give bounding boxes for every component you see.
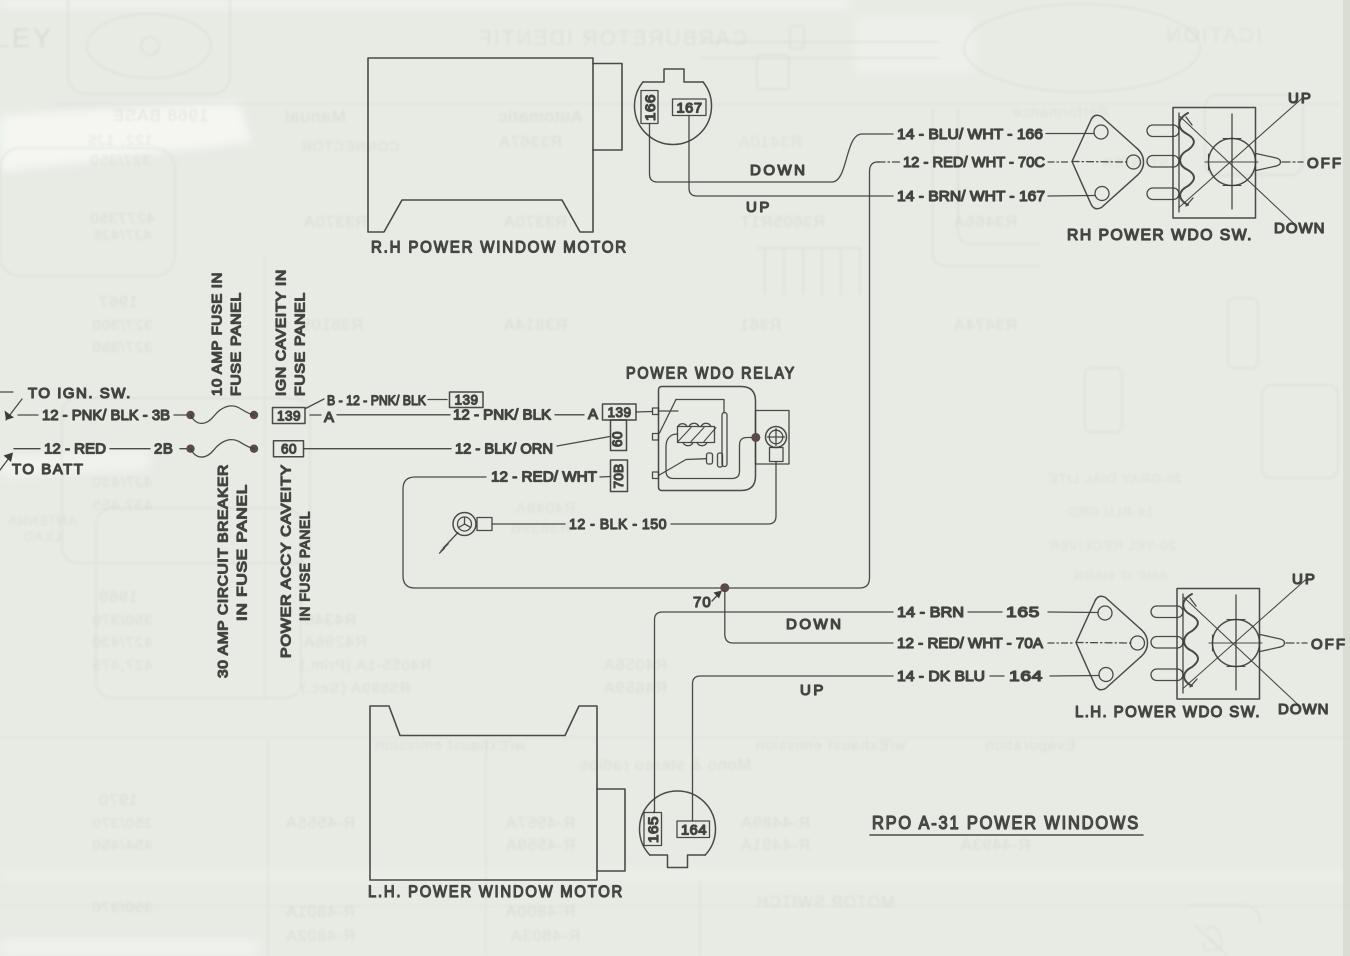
svg-text:CARBURETOR IDENTIF: CARBURETOR IDENTIF — [477, 27, 747, 50]
svg-text:12 - RED/ WHT - 70A: 12 - RED/ WHT - 70A — [897, 635, 1043, 652]
svg-text:R-4557A: R-4557A — [505, 815, 575, 832]
svg-text:20-YEL RECEIVER: 20-YEL RECEIVER — [1048, 538, 1176, 553]
svg-text:POWER ACCY CAVEITY: POWER ACCY CAVEITY — [279, 464, 294, 658]
svg-text:A: A — [324, 409, 334, 426]
svg-text:427,475: 427,475 — [91, 657, 152, 674]
svg-text:A: A — [588, 406, 598, 423]
svg-text:TO BATT: TO BATT — [12, 461, 84, 478]
svg-text:122, 1J5: 122, 1J5 — [87, 132, 153, 149]
svg-text:ANTENNA: ANTENNA — [7, 513, 76, 528]
svg-text:R38105: R38105 — [301, 317, 363, 334]
svg-text:AMP IF HARN: AMP IF HARN — [1073, 568, 1168, 583]
svg-text:R-4491A: R-4491A — [740, 837, 810, 854]
svg-text:139: 139 — [455, 392, 479, 408]
svg-text:1970: 1970 — [98, 792, 138, 809]
svg-text:60: 60 — [609, 431, 625, 447]
svg-text:UP: UP — [1288, 90, 1313, 107]
svg-text:165: 165 — [646, 816, 661, 843]
svg-text:DOWN: DOWN — [1274, 220, 1326, 237]
svg-text:R3370A: R3370A — [503, 214, 567, 231]
svg-text:14 - BLU/ WHT - 166: 14 - BLU/ WHT - 166 — [897, 126, 1043, 143]
svg-text:R4055-1A (Prim.): R4055-1A (Prim.) — [299, 657, 431, 674]
svg-text:R-4803A: R-4803A — [510, 928, 580, 945]
svg-text:12 - BLK - 150: 12 - BLK - 150 — [569, 516, 667, 533]
svg-text:70B: 70B — [611, 464, 626, 489]
svg-text:IGN CAVEITY IN: IGN CAVEITY IN — [274, 269, 289, 396]
svg-text:R3474A: R3474A — [953, 317, 1017, 334]
svg-text:14-BLU GRD: 14-BLU GRD — [1067, 504, 1154, 519]
svg-text:R3839B: R3839B — [510, 520, 570, 537]
svg-text:FUSE PANEL: FUSE PANEL — [229, 292, 244, 396]
svg-text:2B: 2B — [154, 441, 173, 458]
svg-text:Automatic: Automatic — [498, 107, 583, 126]
svg-text:LEAD: LEAD — [23, 529, 61, 544]
svg-text:R4049A: R4049A — [515, 500, 575, 517]
svg-text:4J7/430: 4J7/430 — [92, 474, 152, 491]
svg-text:R-4802A: R-4802A — [285, 928, 355, 945]
svg-text:TO IGN. SW.: TO IGN. SW. — [28, 385, 132, 402]
svg-text:12 - RED/ WHT - 70C: 12 - RED/ WHT - 70C — [903, 154, 1045, 171]
svg-text:R-4800A: R-4800A — [505, 904, 575, 921]
svg-text:R-4555A: R-4555A — [285, 815, 355, 832]
svg-text:70: 70 — [693, 594, 712, 611]
svg-text:POWER WDO RELAY: POWER WDO RELAY — [626, 365, 796, 383]
svg-text:Evaporation: Evaporation — [984, 737, 1075, 754]
svg-text:Mono & stereo radios: Mono & stereo radios — [579, 757, 751, 774]
svg-text:4J7/4J5: 4J7/4J5 — [92, 227, 152, 244]
svg-text:Performance: Performance — [1012, 104, 1109, 121]
svg-text:RPO A-31 POWER WINDOWS: RPO A-31 POWER WINDOWS — [872, 813, 1140, 833]
svg-text:1969: 1969 — [98, 589, 138, 606]
svg-text:1967: 1967 — [98, 294, 138, 311]
svg-text:164: 164 — [1009, 668, 1043, 685]
svg-text:R-4801A: R-4801A — [285, 904, 355, 921]
svg-text:MOTOR SWITCH: MOTOR SWITCH — [756, 894, 895, 911]
svg-text:350/370: 350/370 — [91, 612, 152, 629]
svg-text:R-4489A: R-4489A — [740, 815, 810, 832]
svg-text:167: 167 — [677, 101, 703, 116]
svg-text:R3814A: R3814A — [503, 317, 567, 334]
svg-text:350/370: 350/370 — [91, 899, 152, 916]
svg-text:454/450: 454/450 — [91, 837, 152, 854]
svg-text:12 - PNK/ BLK - 3B: 12 - PNK/ BLK - 3B — [42, 407, 170, 424]
svg-text:FUSE PANEL: FUSE PANEL — [293, 292, 308, 396]
svg-text:427/430: 427/430 — [91, 634, 152, 651]
svg-text:327/350: 327/350 — [91, 339, 152, 356]
svg-text:164: 164 — [681, 823, 707, 838]
svg-text:DOWN: DOWN — [1278, 701, 1330, 718]
svg-text:60: 60 — [281, 441, 297, 457]
svg-text:14 - BRN: 14 - BRN — [897, 604, 964, 621]
svg-text:UP: UP — [800, 682, 826, 699]
svg-text:12 - PNK/ BLK: 12 - PNK/ BLK — [453, 407, 551, 424]
svg-text:R3367A: R3367A — [498, 134, 562, 151]
svg-text:327/350: 327/350 — [89, 152, 150, 169]
svg-text:UP: UP — [746, 199, 772, 216]
svg-text:327/300: 327/300 — [91, 317, 152, 334]
svg-text:IN FUSE PANEL: IN FUSE PANEL — [235, 484, 250, 621]
svg-text:w/Exhaust emission: w/Exhaust emission — [755, 737, 907, 754]
svg-text:DOWN: DOWN — [786, 616, 844, 633]
svg-text:OFF: OFF — [1307, 155, 1343, 172]
svg-text:165: 165 — [1006, 604, 1040, 621]
svg-text:R-4493A: R-4493A — [960, 837, 1030, 854]
svg-text:R3410A: R3410A — [738, 134, 802, 151]
svg-text:CONNECTOR: CONNECTOR — [301, 138, 400, 154]
svg-text:R-4559A: R-4559A — [505, 837, 575, 854]
svg-text:12 - BLK/ ORN: 12 - BLK/ ORN — [455, 441, 553, 458]
svg-text:R3370A: R3370A — [303, 214, 367, 231]
svg-text:10 AMP FUSE IN: 10 AMP FUSE IN — [210, 272, 225, 396]
svg-text:R4056A: R4056A — [603, 657, 667, 674]
svg-text:OFF: OFF — [1311, 636, 1347, 653]
svg-text:139: 139 — [608, 404, 632, 420]
svg-text:UP: UP — [1292, 571, 1317, 588]
svg-text:166: 166 — [643, 94, 658, 121]
svg-text:12 - RED: 12 - RED — [44, 441, 106, 458]
svg-text:B - 12 - PNK/ BLK: B - 12 - PNK/ BLK — [327, 392, 427, 408]
svg-text:L.H. POWER WINDOW MOTOR: L.H. POWER WINDOW MOTOR — [368, 882, 624, 901]
svg-text:437,455: 437,455 — [91, 497, 152, 514]
svg-text:R5599A (Sec.): R5599A (Sec.) — [300, 680, 411, 697]
svg-text:14 - DK BLU: 14 - DK BLU — [897, 668, 985, 685]
svg-text:LEY: LEY — [0, 23, 54, 53]
svg-text:DOWN: DOWN — [750, 162, 808, 179]
svg-text:R3466A: R3466A — [953, 214, 1017, 231]
svg-text:IN FUSE PANEL: IN FUSE PANEL — [298, 511, 313, 621]
svg-text:w/Exhaust emission: w/Exhaust emission — [375, 737, 527, 754]
svg-text:R361: R361 — [739, 317, 781, 334]
svg-text:350/370: 350/370 — [91, 815, 152, 832]
svg-text:4277350: 4277350 — [89, 210, 154, 227]
svg-text:RH POWER WDO SW.: RH POWER WDO SW. — [1067, 227, 1253, 244]
svg-text:R4659A: R4659A — [603, 680, 667, 697]
svg-text:20-GRAY DIAL LITE: 20-GRAY DIAL LITE — [1048, 471, 1183, 486]
svg-text:ICATION: ICATION — [1164, 24, 1262, 47]
svg-text:12 - RED/ WHT: 12 - RED/ WHT — [491, 469, 597, 486]
svg-text:1968 BASE: 1968 BASE — [112, 106, 209, 125]
svg-text:14 - BRN/ WHT - 167: 14 - BRN/ WHT - 167 — [897, 188, 1045, 205]
svg-text:L.H. POWER WDO SW.: L.H. POWER WDO SW. — [1075, 704, 1261, 721]
svg-text:30 AMP CIRCUIT BREAKER: 30 AMP CIRCUIT BREAKER — [216, 464, 231, 678]
svg-text:Manual: Manual — [284, 107, 346, 126]
svg-text:R.H POWER WINDOW MOTOR: R.H POWER WINDOW MOTOR — [371, 238, 628, 257]
svg-text:R4296A: R4296A — [303, 634, 367, 651]
svg-text:139: 139 — [277, 408, 301, 424]
svg-text:R3605R1T: R3605R1T — [739, 214, 824, 231]
